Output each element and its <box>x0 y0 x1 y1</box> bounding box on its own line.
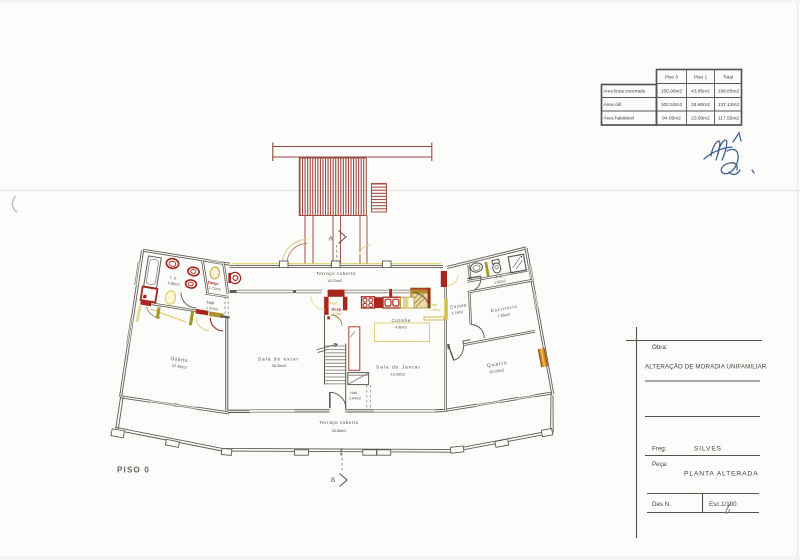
svg-text:102.53m2: 102.53m2 <box>661 102 683 108</box>
svg-text:2.94m2: 2.94m2 <box>349 397 361 401</box>
svg-text:B: B <box>331 477 335 484</box>
svg-text:38.36m2: 38.36m2 <box>272 364 287 368</box>
svg-text:155.00m2: 155.00m2 <box>661 89 683 95</box>
svg-text:43.85m2: 43.85m2 <box>691 89 710 95</box>
svg-text:Área habitável: Área habitável <box>604 115 635 122</box>
svg-text:15.23m2: 15.23m2 <box>327 279 342 283</box>
svg-text:Desp.: Desp. <box>332 307 343 312</box>
svg-text:Total: Total <box>723 75 733 81</box>
svg-text:Esc.1/100: Esc.1/100 <box>709 501 737 508</box>
svg-text:Obra:: Obra: <box>652 344 668 351</box>
svg-text:Terraço coberto: Terraço coberto <box>319 420 358 425</box>
svg-text:ALTERAÇÃO DE MORADIA UNIFAMILI: ALTERAÇÃO DE MORADIA UNIFAMILIAR <box>645 364 767 371</box>
svg-text:Área bruta encerrada: Área bruta encerrada <box>604 89 646 94</box>
svg-text:A: A <box>329 236 334 243</box>
svg-text:30.86m2: 30.86m2 <box>332 429 347 433</box>
svg-text:Piso 1: Piso 1 <box>694 75 708 81</box>
svg-text:137.13m2: 137.13m2 <box>718 102 740 108</box>
svg-text:94.05m2: 94.05m2 <box>662 116 681 122</box>
svg-text:PISO 0: PISO 0 <box>117 466 150 475</box>
svg-text:Sala de estar: Sala de estar <box>258 357 299 363</box>
svg-text:1.29m2: 1.29m2 <box>430 308 441 312</box>
svg-text:4.98m2: 4.98m2 <box>395 326 407 330</box>
svg-text:Terraço coberto: Terraço coberto <box>316 271 355 276</box>
svg-text:Área útil: Área útil <box>604 101 622 108</box>
svg-text:Cozinha: Cozinha <box>392 318 411 323</box>
svg-text:34.60m2: 34.60m2 <box>691 102 710 108</box>
svg-text:PLANTA ALTERADA: PLANTA ALTERADA <box>684 471 758 478</box>
svg-text:Piso 0: Piso 0 <box>665 75 679 81</box>
svg-text:Hall: Hall <box>350 390 357 395</box>
svg-text:19.99m2: 19.99m2 <box>391 373 406 377</box>
svg-text:Des N.: Des N. <box>652 501 671 508</box>
svg-text:Freg:: Freg: <box>652 446 667 453</box>
svg-text:117.55m2: 117.55m2 <box>718 116 739 122</box>
svg-text:Peça:: Peça: <box>652 461 668 468</box>
svg-text:23.50m2: 23.50m2 <box>691 116 710 122</box>
svg-text:Sala de Jantar: Sala de Jantar <box>376 365 421 371</box>
svg-text:Desp: Desp <box>430 303 438 307</box>
svg-text:Hall: Hall <box>330 302 337 306</box>
svg-text:198.85m2: 198.85m2 <box>718 89 740 95</box>
svg-text:SILVES: SILVES <box>694 446 722 453</box>
